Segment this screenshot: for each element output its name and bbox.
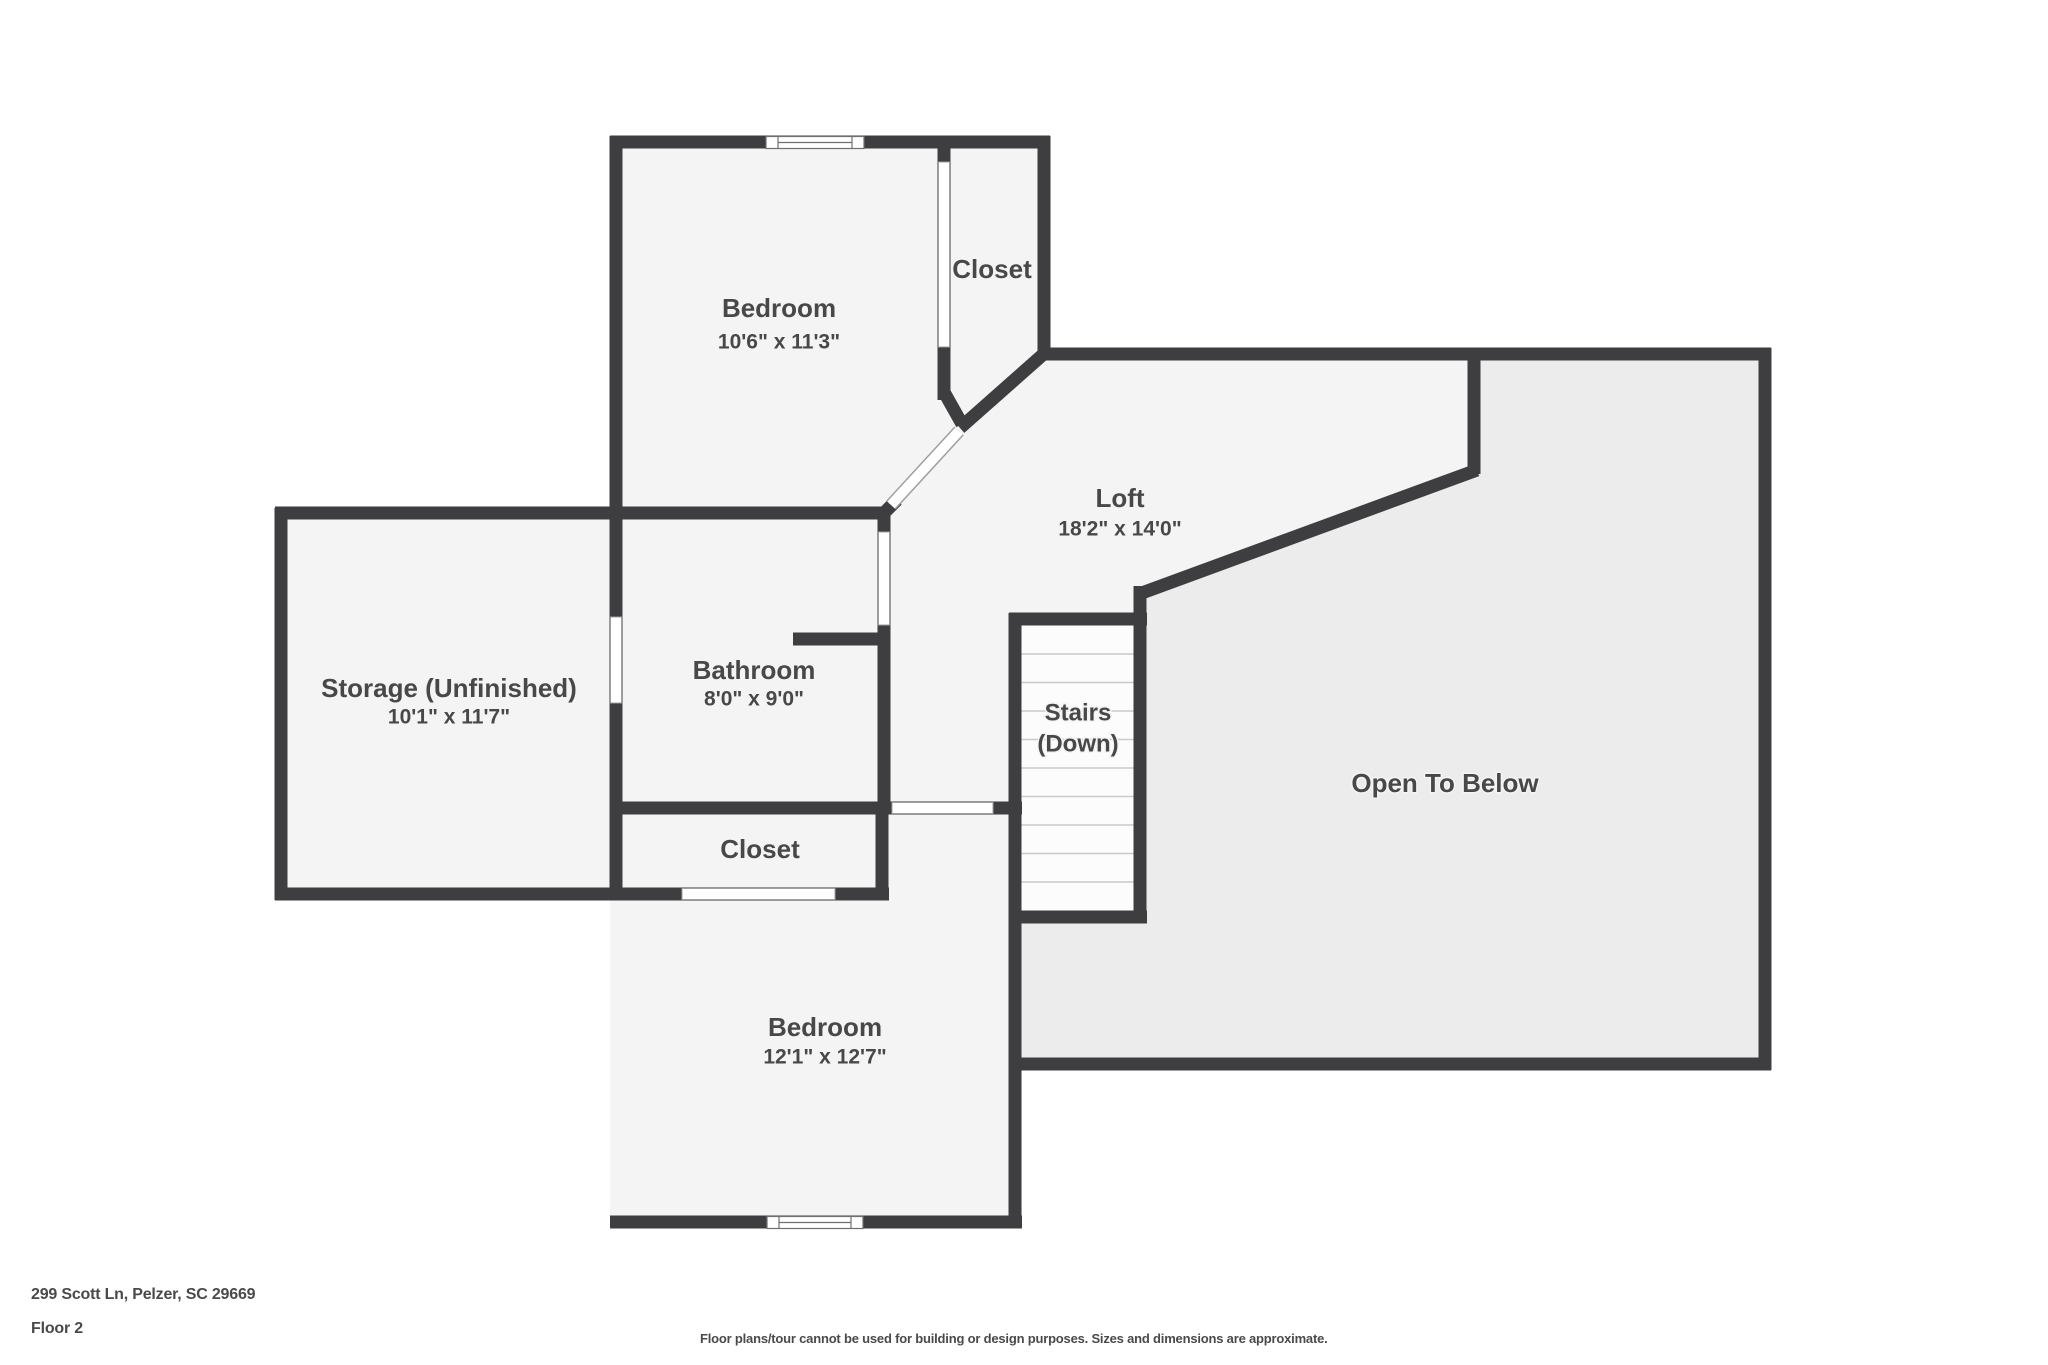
room-label-loft: Loft (1095, 483, 1144, 513)
opening-storage-pass-through (611, 617, 622, 703)
room-dims-stairs: (Down) (1037, 730, 1118, 757)
opening-bathroom-door (879, 532, 890, 625)
floor-plan-page: Bedroom10'6" x 11'3"ClosetLoft18'2" x 14… (0, 0, 2048, 1365)
room-label-bedroom-bottom: Bedroom (768, 1012, 882, 1042)
room-label-closet-top: Closet (952, 254, 1032, 284)
window-bedroom-top-window (766, 137, 864, 149)
room-label-bathroom: Bathroom (693, 655, 816, 685)
room-dims-loft: 18'2" x 14'0" (1058, 518, 1181, 541)
room-label-bedroom-top: Bedroom (722, 293, 836, 323)
opening-bedroom-bottom-door (892, 803, 993, 814)
room-dims-bedroom-bottom: 12'1" x 12'7" (763, 1046, 886, 1069)
disclaimer-text: Floor plans/tour cannot be used for buil… (700, 1331, 1328, 1346)
floor-number-text: Floor 2 (31, 1320, 83, 1338)
room-label-closet-bottom: Closet (720, 834, 800, 864)
window-bedroom-bottom-window (767, 1217, 863, 1229)
room-dims-bathroom: 8'0" x 9'0" (704, 688, 804, 711)
room-dims-bedroom-top: 10'6" x 11'3" (718, 331, 840, 354)
room-dims-storage: 10'1" x 11'7" (388, 706, 510, 729)
room-label-storage: Storage (Unfinished) (321, 673, 577, 703)
opening-closet-top-door (939, 162, 950, 347)
address-text: 299 Scott Ln, Pelzer, SC 29669 (31, 1286, 255, 1304)
opening-closet-bottom-door (682, 889, 835, 900)
room-label-stairs: Stairs (1045, 699, 1112, 726)
floor-plan-svg: Bedroom10'6" x 11'3"ClosetLoft18'2" x 14… (0, 0, 2048, 1365)
room-label-open-to-below: Open To Below (1351, 768, 1539, 798)
